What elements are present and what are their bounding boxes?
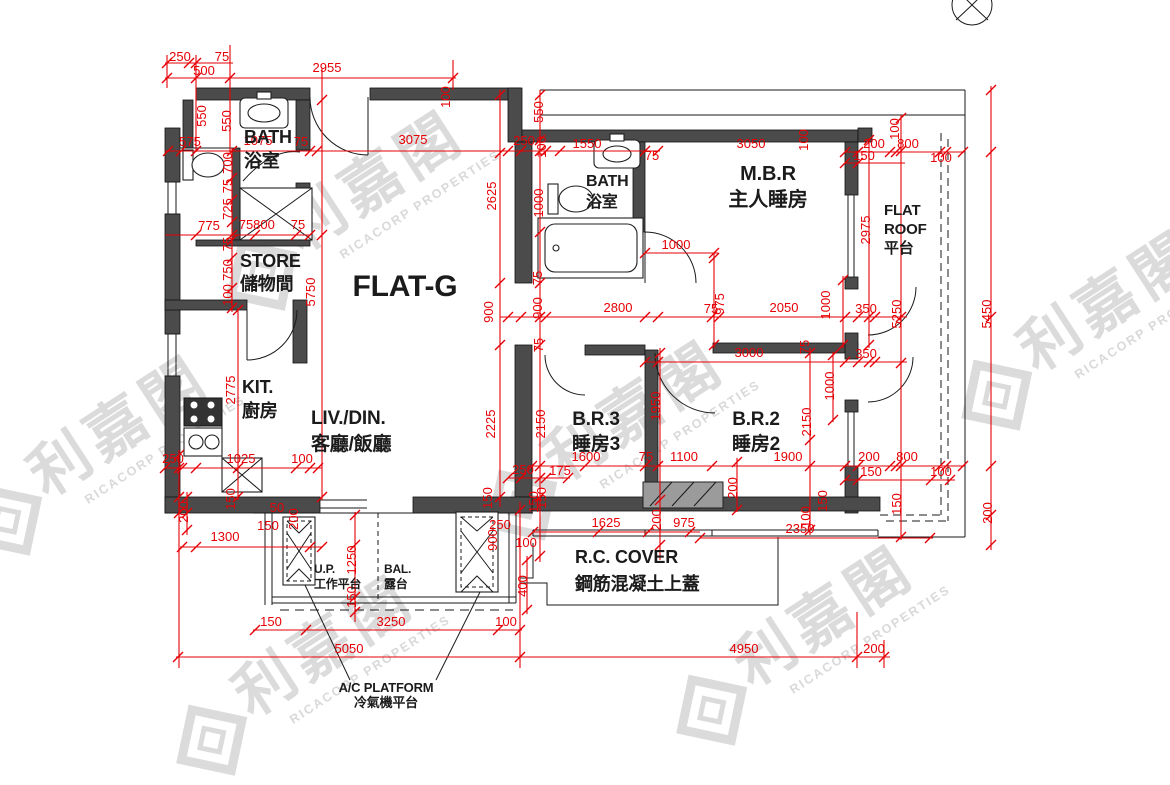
dimension-label: 3050 xyxy=(737,136,766,151)
dimension-label: 75 xyxy=(294,134,308,149)
dimension-label: 1000 xyxy=(822,372,837,401)
dimension-label: 800 xyxy=(253,217,275,232)
dimension-label: 200 xyxy=(858,449,880,464)
room-label-balcony: BAL.露台 xyxy=(384,562,411,591)
dimension-label: 1100 xyxy=(670,449,698,464)
dimension-label: 3250 xyxy=(377,614,406,629)
watermark: 利嘉閣RICACORP PROPERTIES xyxy=(154,553,454,785)
dimension-label: 2150 xyxy=(533,410,548,439)
dimension-label: 550 xyxy=(194,105,209,127)
floor-plan-drawing: 利嘉閣RICACORP PROPERTIES利嘉閣RICACORP PROPER… xyxy=(0,0,1170,785)
dimension-label: 200 xyxy=(176,501,191,523)
dimension-label: 200 xyxy=(286,508,301,530)
dimension-label: 150 xyxy=(257,518,279,533)
dimension-label: 100 xyxy=(796,129,811,151)
dimension-label: 200 xyxy=(980,502,995,524)
dimension-label: 550 xyxy=(219,110,234,132)
dimension-label: 100 xyxy=(515,535,537,550)
dimension-label: 3075 xyxy=(399,132,428,147)
dimension-label: 1250 xyxy=(344,546,359,575)
dimension-label: 100 xyxy=(438,86,453,108)
dimension-label: 175 xyxy=(549,463,571,478)
room-label-rc-cover: R.C. COVER鋼筋混凝土上蓋 xyxy=(574,547,700,594)
dimension-label: 900 xyxy=(485,529,500,551)
shower-box xyxy=(240,188,312,240)
watermark: 利嘉閣RICACORP PROPERTIES xyxy=(939,208,1170,445)
dimension-label: 550 xyxy=(531,101,546,123)
room-label-flat-roof: FLATROOF平台 xyxy=(884,202,927,257)
dimension-label: 2625 xyxy=(484,182,499,211)
dimension-label: 200 xyxy=(863,641,885,656)
dimension-label: 75 xyxy=(215,49,229,64)
dimension-label: 400 xyxy=(515,575,530,597)
room-label-living-dining: LIV./DIN.客廳/飯廳 xyxy=(311,408,391,455)
dimension-label: 575 xyxy=(179,134,201,149)
dimension-label: 800 xyxy=(896,449,918,464)
dimension-label: 75 xyxy=(645,148,659,163)
dimension-label: 900 xyxy=(481,301,496,323)
dimension-label: 150 xyxy=(480,487,495,509)
dimension-label: 1950 xyxy=(648,392,663,421)
dimension-label: 1625 xyxy=(592,515,621,530)
dimension-label: 150 xyxy=(260,614,282,629)
dimension-label: 250 xyxy=(513,133,535,148)
dimension-label: 250 xyxy=(512,462,534,477)
dimension-label: 775 xyxy=(198,218,220,233)
dimension-label: 100 xyxy=(798,506,813,528)
dimension-label: 150 xyxy=(853,148,875,163)
dimension-label: 100 xyxy=(887,118,902,140)
dimension-label: 5450 xyxy=(979,300,994,329)
dimension-label: 250 xyxy=(162,451,184,466)
dimension-label: 700 xyxy=(220,152,235,174)
dimension-label: 200 xyxy=(649,509,664,531)
dimension-label: 2775 xyxy=(223,376,238,405)
dimension-label: 50 xyxy=(270,500,284,515)
room-label-bath-1: BATH浴室 xyxy=(244,127,292,171)
dimension-label: 350 xyxy=(855,346,877,361)
dimension-label: 1025 xyxy=(227,451,256,466)
dimension-label: 2150 xyxy=(799,408,814,437)
dimension-label: 150 xyxy=(889,493,904,515)
dimension-label: 75 xyxy=(239,217,253,232)
dimension-label: 200 xyxy=(725,477,740,499)
dimension-label: 100 xyxy=(534,136,549,158)
dimension-label: 2975 xyxy=(858,216,873,245)
room-label-master-bedroom: M.B.R主人睡房 xyxy=(728,163,807,211)
dimension-label: 100 xyxy=(930,150,952,165)
dimension-label: 250 xyxy=(169,49,191,64)
north-arrow-icon xyxy=(952,0,992,25)
dimension-label: 5750 xyxy=(303,278,318,307)
dimension-label: 75 xyxy=(531,338,546,352)
dimension-label: 2225 xyxy=(483,410,498,439)
dimension-label: 1300 xyxy=(211,529,240,544)
dimension-label: 75 xyxy=(639,449,653,464)
room-label-bath-2: BATH浴室 xyxy=(586,173,628,211)
dimension-label: 975 xyxy=(673,515,695,530)
dimension-label: 75 xyxy=(220,237,235,251)
dimension-label: 1000 xyxy=(818,291,833,320)
dimension-label: 750 xyxy=(220,259,235,281)
dimension-label: 2800 xyxy=(604,300,633,315)
dimension-label: 75 xyxy=(291,217,305,232)
stove xyxy=(184,398,222,426)
dimension-label: 2955 xyxy=(313,60,342,75)
dimension-label: 150 xyxy=(223,488,238,510)
dimension-label: 150 xyxy=(815,490,830,512)
dimension-label: 975 xyxy=(712,293,727,315)
dimension-label: 2050 xyxy=(770,300,799,315)
room-label-flat-g: FLAT-G xyxy=(353,270,458,303)
dimension-label: 4950 xyxy=(730,641,759,656)
dimension-label: 100 xyxy=(291,451,313,466)
dimension-label: 5050 xyxy=(335,641,364,656)
dimension-label: 725 xyxy=(220,198,235,220)
room-label-bedroom-2: B.R.2睡房2 xyxy=(732,409,780,455)
dimension-label: 150 xyxy=(526,491,541,513)
floor-plan-page: 利嘉閣RICACORP PROPERTIES利嘉閣RICACORP PROPER… xyxy=(0,0,1170,785)
dimension-label: 1550 xyxy=(573,136,602,151)
hob xyxy=(184,428,222,456)
dimension-label: 75 xyxy=(530,271,545,285)
watermark: 利嘉閣RICACORP PROPERTIES xyxy=(654,523,954,760)
room-label-kitchen: KIT.廚房 xyxy=(242,377,278,421)
bath1-toilet xyxy=(183,150,224,180)
dimension-label: 100 xyxy=(495,614,517,629)
dimension-label: 100 xyxy=(930,464,952,479)
dimension-label: 1000 xyxy=(531,189,546,218)
dimension-label: 3000 xyxy=(735,345,764,360)
dimension-label: 150 xyxy=(860,464,882,479)
dimension-label: 75 xyxy=(220,179,235,193)
dimension-label: 350 xyxy=(855,301,877,316)
bathtub xyxy=(538,218,643,278)
dimension-label: 100 xyxy=(220,284,235,306)
dimension-label: 1000 xyxy=(662,237,691,252)
dimension-label: 5250 xyxy=(889,300,904,329)
dimension-label: 75 xyxy=(797,340,812,354)
dimension-label: 500 xyxy=(193,63,215,78)
room-label-ac-platform: A/C PLATFORM冷氣機平台 xyxy=(339,680,434,710)
dimension-label: 900 xyxy=(530,297,545,319)
